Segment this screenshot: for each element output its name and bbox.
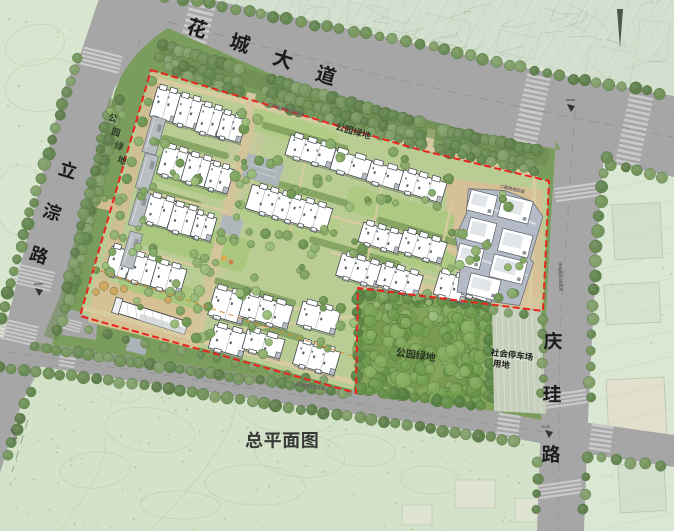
svg-text:26.35: 26.35 — [541, 425, 550, 429]
